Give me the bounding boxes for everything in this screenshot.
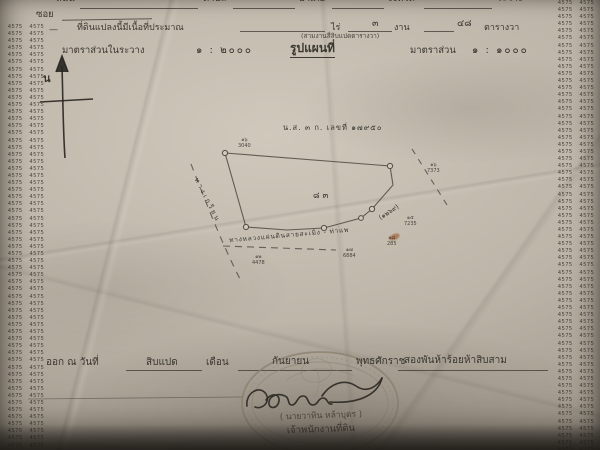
- ngan-label: งาน: [394, 23, 410, 33]
- era-label: พุทธศักราช: [356, 356, 405, 368]
- marker-label: ๑๖3040: [238, 138, 251, 149]
- marker-label: ๑๖7373: [427, 163, 440, 174]
- bottom-road-dashed-line: [223, 246, 336, 250]
- marker-label: ๑๒4478: [252, 255, 265, 266]
- issue-day-value: สิบแปด: [146, 357, 178, 369]
- soi-label: ซอย: [36, 10, 54, 21]
- scale-right-label: มาตราส่วน: [410, 46, 456, 57]
- map-title: รูปแผนที่: [290, 42, 335, 58]
- area-in-words: (สามงานสี่สิบแปดตารางวา): [301, 33, 379, 40]
- province-label: จังหวัด: [387, 0, 415, 5]
- wa-label: ตารางวา: [484, 23, 519, 33]
- marker-label: ๑๗6884: [343, 248, 356, 259]
- deed-number-label: น.ส. ๓ ก. เลขที่ ๑๗๙๕๐: [283, 124, 382, 133]
- issue-month-value: กันยายน: [272, 356, 309, 368]
- survey-drawing: [0, 0, 600, 450]
- month-label: เดือน: [206, 357, 229, 369]
- crease-line: [28, 397, 242, 399]
- boundary-markers: [222, 150, 392, 230]
- marker-label: ๑๘285: [387, 236, 397, 247]
- parcel-number: ๘๓: [313, 192, 331, 202]
- area-label: ที่ดินแปลงนี้มีเนื้อที่ประมาณ: [77, 23, 184, 33]
- north-label: น: [43, 73, 51, 86]
- right-road-dashed-line: [412, 149, 447, 205]
- issued-on-label: ออก ณ วันที่: [46, 357, 99, 369]
- sheet-label: ระวาง: [497, 0, 523, 5]
- marker-label: ๑๕7235: [404, 216, 417, 227]
- amphoe-label: อำเภอ: [299, 0, 325, 5]
- ngan-value: ๓: [372, 19, 379, 30]
- plot-polygon: [225, 153, 393, 230]
- land-deed-photo: 4575 4575 4575 4575 4575 4575 4575 4575 …: [0, 0, 600, 450]
- scale-left-ratio: ๑ : ๒๐๐๐: [196, 45, 253, 57]
- scale-right-ratio: ๑ : ๑๐๐๐: [472, 45, 529, 57]
- area-dash: —: [49, 25, 58, 35]
- street-label: ถนน: [56, 0, 75, 5]
- issue-year-value: สองพันห้าร้อยห้าสิบสาม: [404, 355, 507, 367]
- tambon-label: ตำบล: [203, 0, 226, 5]
- scale-left-label: มาตราส่วนในระวาง: [62, 46, 144, 57]
- wa-value: ๔๘: [457, 19, 472, 30]
